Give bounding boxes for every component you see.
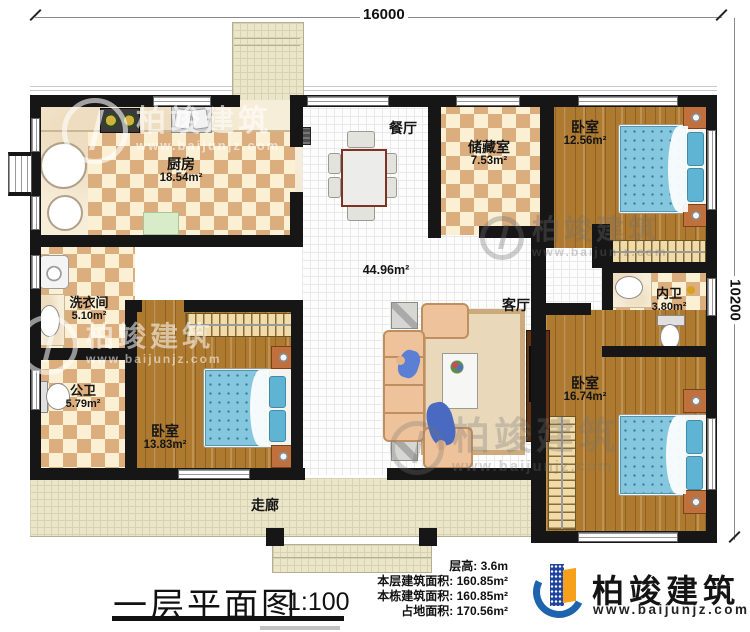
wardrobe: [610, 240, 706, 264]
room-label-bedroom2: 卧室 13.83m²: [144, 424, 187, 452]
brand-website: www.baijunjz.com: [593, 602, 750, 617]
stats-block: 层高: 3.6m 本层建筑面积: 160.85m² 本栋建筑面积: 160.85…: [300, 559, 508, 619]
bathroom-sink-icon: [615, 276, 643, 299]
room-area: 5.10m²: [69, 310, 108, 322]
fixture-knob: [687, 286, 695, 294]
living-area-label: 44.96m²: [363, 264, 410, 278]
room-name: 卧室: [144, 424, 187, 439]
window: [707, 130, 716, 210]
room-name: 洗衣间: [69, 296, 108, 310]
dining-table: [341, 149, 387, 207]
window: [31, 118, 40, 152]
window: [153, 96, 211, 106]
wall: [30, 348, 136, 360]
room-name: 客厅: [502, 297, 530, 313]
window: [307, 96, 389, 106]
person-head: [436, 440, 446, 450]
room-area: 16.74m²: [564, 391, 607, 404]
washing-machine-icon: [39, 255, 69, 289]
dimension-tick: [715, 9, 727, 21]
side-table: [391, 302, 418, 329]
room-name: 公卫: [66, 384, 101, 398]
eave-line: [30, 86, 717, 87]
dining-chair: [328, 177, 341, 198]
sofa: [383, 330, 425, 442]
wall: [602, 262, 712, 273]
bay-window: [8, 152, 32, 196]
right-dimension-label: 10200: [727, 276, 744, 324]
room-name: 内卫: [652, 287, 687, 301]
room-label-ensuite: 内卫 3.80m²: [652, 287, 687, 313]
wardrobe: [186, 313, 294, 337]
room-label-laundry: 洗衣间 5.10m²: [69, 296, 108, 322]
table-flowers: [450, 360, 464, 374]
bed-blanket: [666, 416, 686, 494]
pillow: [269, 410, 286, 442]
person-head: [396, 356, 405, 365]
window: [707, 418, 716, 490]
bed-blanket: [668, 126, 688, 212]
stat-label: 占地面积:: [401, 604, 453, 618]
porch-step-line: [234, 38, 300, 39]
room-area: 18.54m²: [160, 172, 203, 185]
room-label-bedroom1: 卧室 12.56m²: [564, 120, 607, 148]
room-area: 44.96m²: [363, 263, 410, 277]
porch-column: [419, 528, 437, 546]
pillow: [686, 456, 703, 490]
sink-basin: [174, 108, 193, 130]
window: [31, 370, 40, 410]
window: [31, 196, 40, 230]
stat-row: 占地面积: 170.56m²: [300, 604, 508, 619]
dining-chair: [347, 131, 375, 148]
dimension-tick: [29, 9, 41, 21]
window: [31, 255, 40, 289]
laundry-sink-icon: [39, 305, 60, 337]
stat-value: 160.85m²: [457, 589, 508, 603]
window: [707, 278, 716, 316]
room-label-corridor: 走廊: [251, 498, 279, 513]
wall: [531, 236, 551, 248]
wall: [428, 95, 441, 238]
wardrobe: [548, 416, 576, 530]
window: [178, 469, 250, 479]
stat-row: 本栋建筑面积: 160.85m²: [300, 589, 508, 604]
dining-chair: [328, 153, 341, 174]
wall: [30, 235, 303, 247]
room-name: 卧室: [564, 120, 607, 135]
wall: [540, 95, 554, 248]
stat-label: 本层建筑面积:: [377, 574, 453, 588]
wall: [602, 240, 613, 310]
wall: [184, 300, 303, 312]
wall: [125, 300, 137, 476]
wall: [531, 247, 546, 531]
top-dimension-label: 16000: [360, 6, 408, 23]
stat-value: 160.85m²: [457, 574, 508, 588]
wall: [30, 468, 305, 480]
room-name: 卧室: [564, 376, 607, 391]
pillow: [687, 132, 704, 166]
room-label-bedroom3: 卧室 16.74m²: [564, 376, 607, 404]
wall: [428, 226, 441, 238]
room-name: 储藏室: [468, 140, 510, 155]
room-label-dining: 餐厅: [389, 121, 417, 136]
window: [456, 96, 520, 106]
stat-value: 170.56m²: [457, 604, 508, 618]
wall: [387, 468, 544, 480]
pillow: [687, 168, 704, 202]
room-label-living: 客厅: [502, 298, 530, 313]
round-table-small: [47, 195, 83, 231]
room-name: 厨房: [160, 157, 203, 172]
pillow: [269, 376, 286, 408]
wall: [602, 346, 712, 357]
room-area: 13.83m²: [144, 439, 187, 452]
wall: [545, 303, 591, 315]
porch-column: [266, 528, 284, 546]
stat-label: 本栋建筑面积:: [377, 589, 453, 603]
sink-basin: [191, 108, 210, 130]
stat-row: 层高: 3.6m: [300, 559, 508, 574]
room-label-storage: 储藏室 7.53m²: [468, 140, 510, 168]
kitchen-mat: [143, 212, 179, 235]
wall: [291, 300, 303, 476]
stove-icon: [100, 108, 140, 133]
window: [578, 532, 678, 542]
kitchen-counter-edge: [40, 130, 290, 132]
stat-value: 3.6m: [481, 559, 508, 573]
bed-blanket: [250, 370, 268, 446]
stat-row: 本层建筑面积: 160.85m²: [300, 574, 508, 589]
pillow: [686, 420, 703, 454]
eave-line: [30, 90, 717, 91]
wall: [290, 95, 303, 147]
room-area: 7.53m²: [468, 155, 510, 168]
title-underline-shadow: [260, 626, 340, 630]
stat-label: 层高:: [449, 559, 477, 573]
brand-logo-icon: [533, 562, 589, 620]
room-name: 走廊: [251, 497, 279, 513]
room-area: 3.80m²: [652, 301, 687, 313]
room-label-bath: 公卫 5.79m²: [66, 384, 101, 410]
floor-plan-canvas: 16000 10200: [0, 0, 750, 632]
wall: [125, 300, 142, 312]
room-label-kitchen: 厨房 18.54m²: [160, 157, 203, 185]
room-area: 5.79m²: [66, 398, 101, 410]
logo-building-blue: [550, 564, 564, 606]
room-area: 12.56m²: [564, 135, 607, 148]
room-name: 餐厅: [389, 120, 417, 136]
round-table-large: [40, 142, 87, 189]
logo-building-orange: [563, 568, 576, 603]
armchair: [421, 303, 469, 339]
window: [578, 96, 678, 106]
